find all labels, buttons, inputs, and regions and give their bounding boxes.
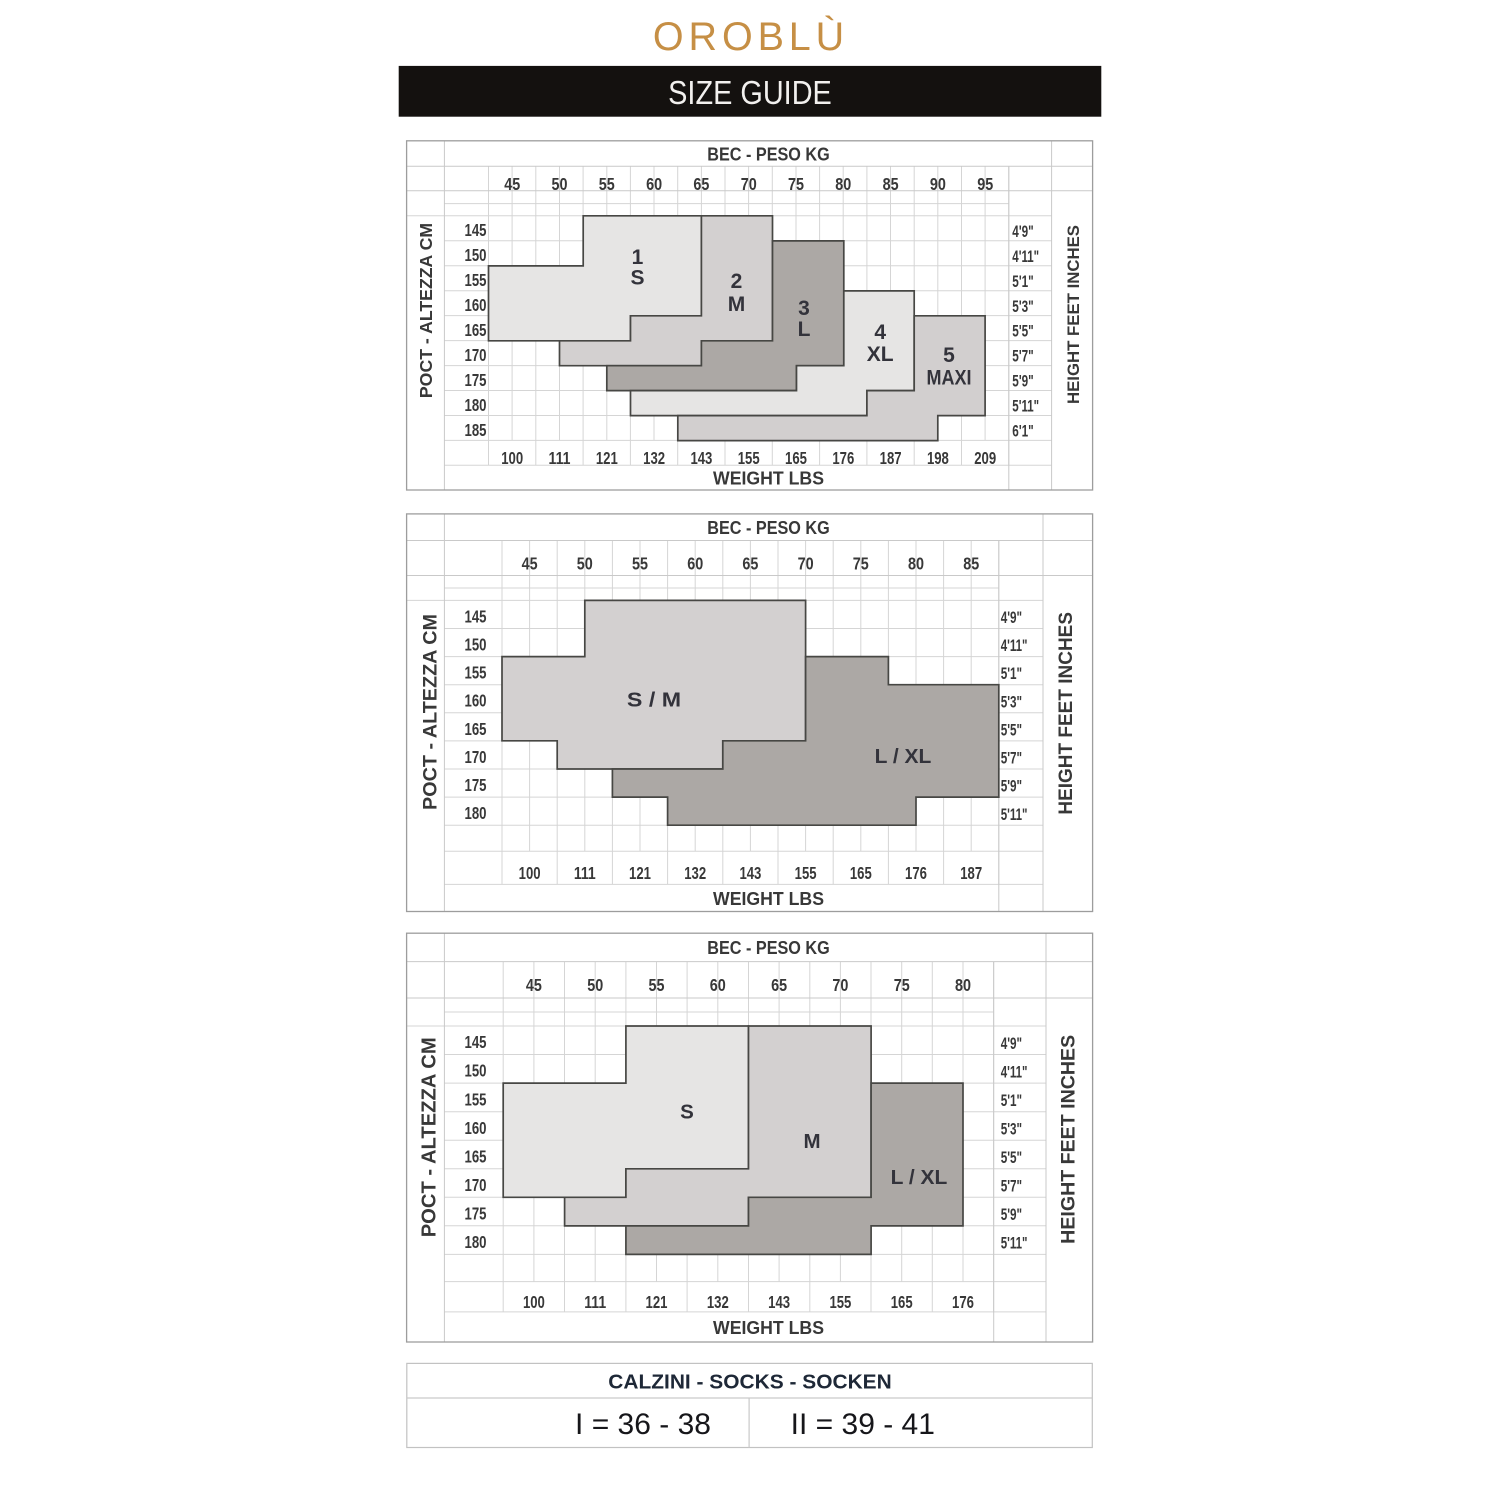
svg-text:176: 176 (905, 863, 927, 883)
svg-text:60: 60 (710, 975, 726, 995)
svg-text:145: 145 (465, 220, 487, 240)
svg-text:85: 85 (963, 553, 979, 573)
svg-text:5'7": 5'7" (1012, 348, 1033, 366)
svg-text:121: 121 (629, 863, 651, 883)
svg-text:55: 55 (649, 975, 665, 995)
svg-text:5'5": 5'5" (1001, 1149, 1022, 1167)
svg-text:90: 90 (930, 174, 946, 194)
svg-text:155: 155 (465, 1089, 487, 1109)
svg-text:143: 143 (690, 448, 712, 468)
svg-text:4'9": 4'9" (1012, 223, 1033, 241)
svg-text:4'11": 4'11" (1001, 1063, 1028, 1081)
svg-text:65: 65 (693, 174, 709, 194)
svg-text:180: 180 (465, 803, 487, 823)
svg-text:75: 75 (894, 975, 910, 995)
svg-text:5'5": 5'5" (1012, 323, 1033, 341)
svg-text:45: 45 (504, 174, 520, 194)
svg-text:100: 100 (501, 448, 523, 468)
svg-text:175: 175 (465, 775, 487, 795)
svg-text:4'11": 4'11" (1012, 248, 1039, 266)
svg-text:HEIGHT FEET INCHES: HEIGHT FEET INCHES (1064, 225, 1083, 404)
svg-text:50: 50 (552, 174, 568, 194)
svg-text:XL: XL (867, 343, 894, 366)
svg-text:80: 80 (835, 174, 851, 194)
svg-text:165: 165 (465, 719, 487, 739)
svg-text:POCT - ALTEZZA CM: POCT - ALTEZZA CM (416, 223, 436, 398)
svg-text:160: 160 (465, 691, 487, 711)
svg-text:170: 170 (465, 747, 487, 767)
svg-text:6'1": 6'1" (1012, 423, 1033, 441)
svg-text:185: 185 (465, 420, 487, 440)
svg-text:176: 176 (952, 1292, 974, 1312)
svg-text:2: 2 (731, 270, 743, 293)
svg-text:WEIGHT LBS: WEIGHT LBS (713, 889, 824, 909)
svg-text:111: 111 (549, 448, 571, 468)
svg-text:5'5": 5'5" (1001, 722, 1022, 740)
svg-text:5'7": 5'7" (1001, 750, 1022, 768)
svg-text:45: 45 (522, 553, 538, 573)
svg-text:5'3": 5'3" (1012, 298, 1033, 316)
svg-text:175: 175 (465, 370, 487, 390)
svg-text:145: 145 (465, 1032, 487, 1052)
svg-text:I = 36 - 38: I = 36 - 38 (575, 1408, 711, 1441)
svg-text:5'9": 5'9" (1001, 1206, 1022, 1224)
svg-text:170: 170 (465, 345, 487, 365)
svg-text:OROBLÙ: OROBLÙ (653, 15, 849, 59)
svg-text:5'3": 5'3" (1001, 1121, 1022, 1139)
svg-text:5'1": 5'1" (1012, 273, 1033, 291)
svg-text:150: 150 (465, 1061, 487, 1081)
svg-text:HEIGHT FEET INCHES: HEIGHT FEET INCHES (1056, 612, 1077, 815)
svg-text:WEIGHT LBS: WEIGHT LBS (713, 468, 824, 488)
svg-text:S: S (630, 266, 644, 289)
svg-text:165: 165 (785, 448, 807, 468)
svg-text:65: 65 (742, 553, 758, 573)
svg-text:L / XL: L / XL (891, 1166, 948, 1189)
svg-text:4: 4 (874, 321, 886, 344)
svg-text:100: 100 (523, 1292, 545, 1312)
svg-text:165: 165 (465, 320, 487, 340)
svg-text:CALZINI - SOCKS - SOCKEN: CALZINI - SOCKS - SOCKEN (608, 1370, 892, 1393)
svg-text:5'1": 5'1" (1001, 1092, 1022, 1110)
svg-text:155: 155 (465, 270, 487, 290)
svg-text:143: 143 (739, 863, 761, 883)
svg-text:65: 65 (771, 975, 787, 995)
svg-text:150: 150 (465, 245, 487, 265)
svg-text:70: 70 (832, 975, 848, 995)
svg-text:BEC - PESO KG: BEC - PESO KG (707, 517, 830, 538)
svg-text:II = 39 - 41: II = 39 - 41 (791, 1408, 935, 1441)
svg-text:100: 100 (519, 863, 541, 883)
svg-text:5'1": 5'1" (1001, 665, 1022, 683)
svg-text:5'11": 5'11" (1001, 806, 1028, 824)
svg-text:80: 80 (955, 975, 971, 995)
svg-text:160: 160 (465, 1118, 487, 1138)
svg-text:155: 155 (738, 448, 760, 468)
svg-text:209: 209 (974, 448, 996, 468)
svg-text:180: 180 (465, 395, 487, 415)
svg-text:165: 165 (465, 1146, 487, 1166)
svg-text:187: 187 (960, 863, 982, 883)
svg-text:165: 165 (850, 863, 872, 883)
svg-text:5: 5 (943, 344, 955, 367)
svg-text:WEIGHT LBS: WEIGHT LBS (713, 1318, 824, 1338)
svg-text:45: 45 (526, 975, 542, 995)
svg-text:5'9": 5'9" (1001, 778, 1022, 796)
svg-text:155: 155 (795, 863, 817, 883)
svg-text:143: 143 (768, 1292, 790, 1312)
svg-text:121: 121 (646, 1292, 668, 1312)
svg-text:95: 95 (977, 174, 993, 194)
svg-text:50: 50 (577, 553, 593, 573)
svg-text:70: 70 (741, 174, 757, 194)
svg-text:111: 111 (584, 1292, 606, 1312)
svg-text:MAXI: MAXI (927, 367, 972, 390)
svg-text:5'9": 5'9" (1012, 373, 1033, 391)
svg-text:55: 55 (599, 174, 615, 194)
svg-text:198: 198 (927, 448, 949, 468)
svg-text:5'11": 5'11" (1001, 1235, 1028, 1253)
svg-text:160: 160 (465, 295, 487, 315)
svg-text:70: 70 (798, 553, 814, 573)
svg-text:4'9": 4'9" (1001, 1035, 1022, 1053)
svg-text:155: 155 (829, 1292, 851, 1312)
svg-text:5'3": 5'3" (1001, 693, 1022, 711)
svg-text:170: 170 (465, 1175, 487, 1195)
svg-text:75: 75 (853, 553, 869, 573)
svg-text:M: M (803, 1130, 820, 1153)
svg-text:145: 145 (465, 606, 487, 626)
svg-text:132: 132 (707, 1292, 729, 1312)
svg-text:121: 121 (596, 448, 618, 468)
svg-text:L / XL: L / XL (875, 745, 932, 768)
svg-text:POCT - ALTEZZA CM: POCT - ALTEZZA CM (419, 1037, 441, 1237)
svg-text:132: 132 (684, 863, 706, 883)
svg-text:5'11": 5'11" (1012, 398, 1039, 416)
svg-text:4'11": 4'11" (1001, 637, 1028, 655)
svg-text:HEIGHT FEET INCHES: HEIGHT FEET INCHES (1057, 1035, 1079, 1244)
svg-text:S: S (680, 1100, 694, 1123)
svg-text:175: 175 (465, 1204, 487, 1224)
svg-text:M: M (728, 293, 746, 316)
svg-text:150: 150 (465, 634, 487, 654)
svg-text:80: 80 (908, 553, 924, 573)
svg-text:55: 55 (632, 553, 648, 573)
svg-text:111: 111 (574, 863, 596, 883)
svg-text:5'7": 5'7" (1001, 1178, 1022, 1196)
svg-text:POCT - ALTEZZA CM: POCT - ALTEZZA CM (420, 614, 442, 810)
svg-text:60: 60 (646, 174, 662, 194)
svg-text:L: L (798, 318, 811, 341)
svg-text:180: 180 (465, 1232, 487, 1252)
svg-text:60: 60 (687, 553, 703, 573)
svg-text:3: 3 (798, 297, 810, 320)
svg-text:S / M: S / M (627, 688, 681, 711)
svg-text:BEC - PESO KG: BEC - PESO KG (707, 143, 830, 164)
svg-text:132: 132 (643, 448, 665, 468)
svg-text:75: 75 (788, 174, 804, 194)
svg-text:187: 187 (880, 448, 902, 468)
svg-text:50: 50 (587, 975, 603, 995)
svg-text:85: 85 (883, 174, 899, 194)
svg-text:4'9": 4'9" (1001, 609, 1022, 627)
svg-text:165: 165 (891, 1292, 913, 1312)
svg-text:SIZE GUIDE: SIZE GUIDE (668, 74, 832, 111)
svg-text:176: 176 (832, 448, 854, 468)
svg-text:BEC - PESO KG: BEC - PESO KG (707, 937, 830, 958)
svg-text:155: 155 (465, 663, 487, 683)
